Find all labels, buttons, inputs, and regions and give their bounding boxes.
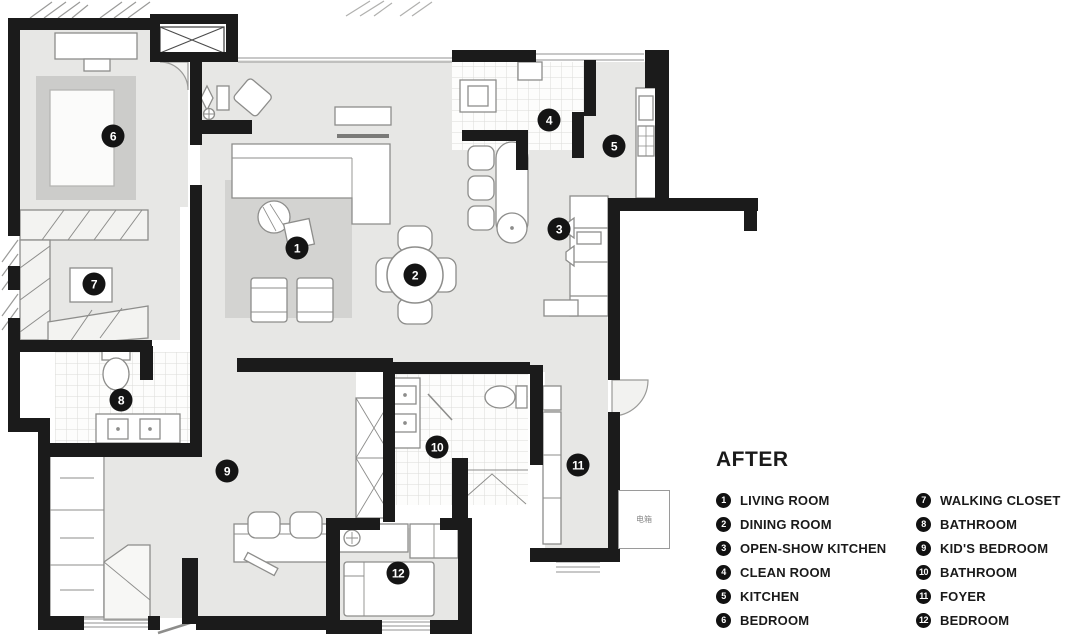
legend-marker: 7 xyxy=(916,493,931,508)
legend-item: 1LIVING ROOM xyxy=(716,488,916,512)
room-marker-6: 6 xyxy=(102,125,125,148)
legend-item: 4CLEAN ROOM xyxy=(716,560,916,584)
legend-marker: 12 xyxy=(916,613,931,628)
legend-item: 11FOYER xyxy=(916,584,1061,608)
legend-item: 7WALKING CLOSET xyxy=(916,488,1061,512)
room-marker-11: 11 xyxy=(567,454,590,477)
legend-label: KID'S BEDROOM xyxy=(940,541,1048,556)
legend-item: 2DINING ROOM xyxy=(716,512,916,536)
legend-item: 12BEDROOM xyxy=(916,608,1061,632)
tv-console xyxy=(335,107,391,125)
legend-col-2: 7WALKING CLOSET8BATHROOM9KID'S BEDROOM10… xyxy=(916,488,1061,632)
legend-marker: 5 xyxy=(716,589,731,604)
floorplan-page: 电箱 123456789101112 AFTER 1LIVING ROOM2DI… xyxy=(0,0,1080,637)
legend-marker: 1 xyxy=(716,493,731,508)
legend-label: KITCHEN xyxy=(740,589,799,604)
legend-label: DINING ROOM xyxy=(740,517,832,532)
washing-machine xyxy=(460,80,496,112)
foyer-cabinet xyxy=(543,386,561,544)
room-marker-9: 9 xyxy=(216,460,239,483)
legend-col-1: 1LIVING ROOM2DINING ROOM3OPEN-SHOW KITCH… xyxy=(716,488,916,632)
kitchen-counter xyxy=(636,88,656,198)
legend-marker: 8 xyxy=(916,517,931,532)
room-marker-12: 12 xyxy=(387,562,410,585)
legend-marker: 10 xyxy=(916,565,931,580)
legend-title: AFTER xyxy=(716,448,1080,472)
legend-item: 10BATHROOM xyxy=(916,560,1061,584)
legend-marker: 3 xyxy=(716,541,731,556)
closet-x-top xyxy=(160,27,224,53)
room-marker-10: 10 xyxy=(426,436,449,459)
room-marker-7: 7 xyxy=(83,273,106,296)
tv xyxy=(337,134,389,138)
legend-marker: 2 xyxy=(716,517,731,532)
legend-item: 9KID'S BEDROOM xyxy=(916,536,1061,560)
legend-label: BEDROOM xyxy=(740,613,809,628)
legend-label: LIVING ROOM xyxy=(740,493,830,508)
room-marker-1: 1 xyxy=(286,237,309,260)
legend-marker: 4 xyxy=(716,565,731,580)
legend-label: WALKING CLOSET xyxy=(940,493,1061,508)
legend-item: 3OPEN-SHOW KITCHEN xyxy=(716,536,916,560)
legend-item: 8BATHROOM xyxy=(916,512,1061,536)
legend-marker: 11 xyxy=(916,589,931,604)
room-marker-4: 4 xyxy=(538,109,561,132)
legend-label: BEDROOM xyxy=(940,613,1009,628)
electric-box: 电箱 xyxy=(618,490,670,549)
legend-label: BATHROOM xyxy=(940,517,1017,532)
legend-marker: 6 xyxy=(716,613,731,628)
legend-label: BATHROOM xyxy=(940,565,1017,580)
legend-columns: 1LIVING ROOM2DINING ROOM3OPEN-SHOW KITCH… xyxy=(716,488,1080,632)
room-marker-8: 8 xyxy=(110,389,133,412)
legend-marker: 9 xyxy=(916,541,931,556)
legend-label: CLEAN ROOM xyxy=(740,565,831,580)
cleanroom-cabinet xyxy=(518,62,542,80)
room-marker-3: 3 xyxy=(548,218,571,241)
legend-item: 5KITCHEN xyxy=(716,584,916,608)
room-marker-2: 2 xyxy=(404,264,427,287)
legend: AFTER 1LIVING ROOM2DINING ROOM3OPEN-SHOW… xyxy=(700,448,1080,632)
room-marker-5: 5 xyxy=(603,135,626,158)
electric-box-label: 电箱 xyxy=(636,514,652,525)
legend-label: FOYER xyxy=(940,589,986,604)
legend-item: 6BEDROOM xyxy=(716,608,916,632)
legend-label: OPEN-SHOW KITCHEN xyxy=(740,541,886,556)
